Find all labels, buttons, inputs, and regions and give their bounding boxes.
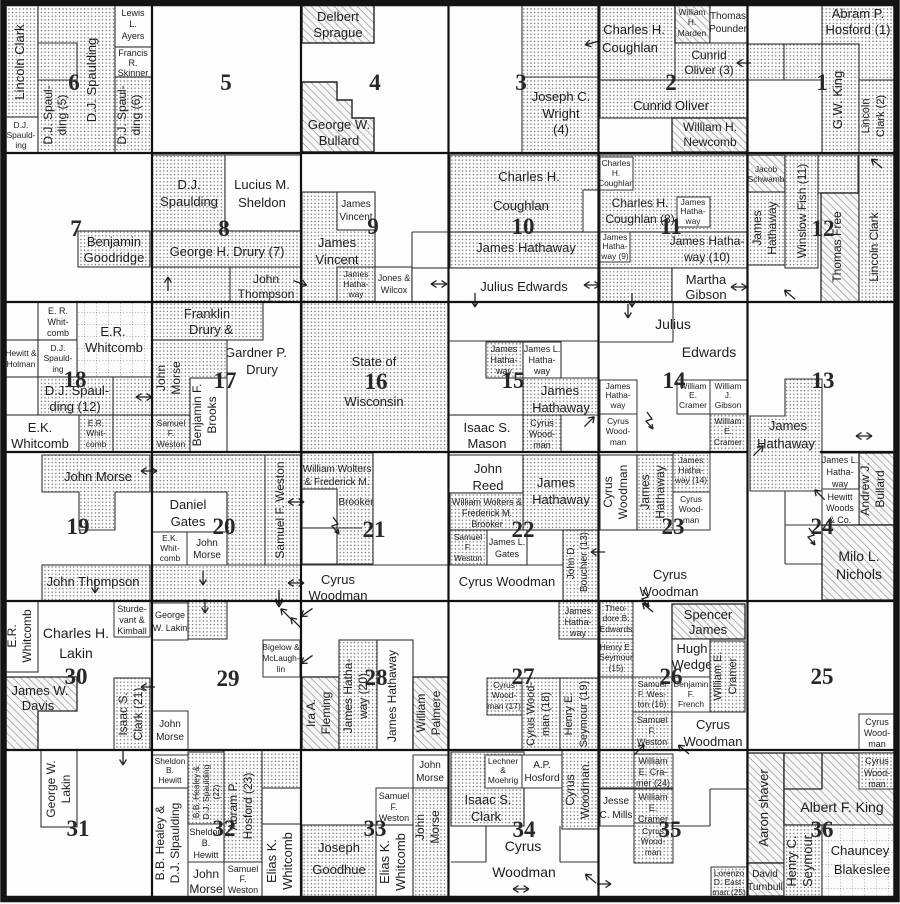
svg-text:John: John [253,272,279,286]
svg-text:Fleming: Fleming [319,692,333,735]
svg-text:Goodhue: Goodhue [312,862,366,877]
svg-text:Charles H.: Charles H. [43,625,109,641]
svg-text:F. Wes-: F. Wes- [638,689,666,699]
svg-text:Cyrus: Cyrus [563,774,577,805]
svg-text:Julius: Julius [655,316,691,332]
svg-text:ton (16): ton (16) [638,699,667,709]
svg-text:way: way [569,628,587,638]
svg-text:Lincoln Clark: Lincoln Clark [867,211,881,281]
svg-text:James: James [344,269,369,279]
svg-text:Hatha-: Hatha- [343,279,368,289]
svg-text:29: 29 [217,666,240,691]
svg-text:D. East-: D. East- [714,877,744,887]
svg-text:D.J.: D.J. [14,120,29,130]
svg-text:Gardner P.: Gardner P. [225,345,287,360]
svg-text:Hathaway: Hathaway [532,492,590,507]
svg-text:Gibson: Gibson [685,287,726,302]
svg-text:H.: H. [688,17,696,27]
svg-text:Hatha-: Hatha- [680,206,705,216]
svg-text:Gibson: Gibson [715,400,742,410]
svg-text:Samuel: Samuel [454,532,483,542]
svg-text:(22): (22) [211,784,221,799]
svg-text:J.: J. [725,390,732,400]
svg-text:14: 14 [663,368,687,393]
svg-text:D.J. Spaulding: D.J. Spaulding [84,38,99,123]
svg-text:William: William [639,792,668,802]
svg-text:Clark (2): Clark (2) [875,95,887,137]
svg-text:Cunrid Oliver: Cunrid Oliver [633,98,710,113]
svg-text:Newcomb: Newcomb [683,135,737,149]
svg-text:E. Cra-: E. Cra- [639,767,668,777]
svg-text:Whitcomb: Whitcomb [393,833,408,891]
svg-text:Isaac S.: Isaac S. [464,420,511,435]
svg-text:7: 7 [70,216,82,241]
svg-text:A.P.: A.P. [533,760,551,771]
svg-text:Davis: Davis [22,698,55,713]
svg-text:Jacob: Jacob [755,164,778,174]
svg-text:man: man [683,515,700,525]
svg-text:William: William [715,416,742,426]
svg-text:Cramer: Cramer [679,400,707,410]
svg-text:R.: R. [129,58,138,68]
svg-text:man: man [868,779,886,789]
svg-text:Drury &: Drury & [189,322,233,337]
svg-text:Coughlan: Coughlan [598,178,634,188]
svg-text:30: 30 [65,664,88,689]
svg-text:Hatha-: Hatha- [528,355,555,365]
svg-text:F.: F. [239,874,246,884]
svg-text:William E.: William E. [712,652,724,701]
svg-text:Whitcomb: Whitcomb [280,832,295,890]
svg-text:David: David [752,869,778,880]
svg-text:William: William [679,7,706,17]
svg-text:D.J. Slpaulding: D.J. Slpaulding [168,803,182,884]
svg-text:Thompson: Thompson [238,287,295,301]
svg-text:Seymour: Seymour [800,834,815,887]
svg-text:Hewitt: Hewitt [827,492,853,502]
svg-text:man (25): man (25) [712,887,746,897]
svg-text:Elias K.: Elias K. [264,839,279,883]
svg-text:E.K.: E.K. [28,420,53,435]
svg-text:2: 2 [665,70,677,95]
svg-text:Charles: Charles [602,158,631,168]
svg-text:Samuel F. Weston: Samuel F. Weston [273,461,287,558]
svg-text:Wood-: Wood- [679,504,704,514]
svg-text:Nichols: Nichols [836,566,882,582]
svg-text:Andrew J.: Andrew J. [858,462,872,515]
svg-text:State of: State of [352,354,397,369]
svg-text:11: 11 [660,214,682,239]
svg-text:Coughlan: Coughlan [602,40,658,55]
svg-text:Whitcomb: Whitcomb [85,340,143,355]
svg-text:Sheldon: Sheldon [238,195,286,210]
svg-text:Charles H.: Charles H. [612,196,669,210]
svg-text:Julius Edwards: Julius Edwards [480,279,568,294]
svg-text:way: way [685,216,702,226]
svg-text:James Hatha-: James Hatha- [341,659,355,734]
svg-text:dore B.: dore B. [602,613,629,623]
svg-text:W. Lakin: W. Lakin [153,623,188,633]
svg-text:E.R.: E.R. [100,324,125,339]
svg-text:Morse: Morse [193,550,221,561]
svg-text:Whit-: Whit- [86,428,106,438]
svg-text:Spaulding: Spaulding [160,194,218,209]
svg-text:man: man [610,437,627,447]
svg-text:G.W. King: G.W. King [830,71,845,130]
svg-text:9: 9 [367,214,379,239]
svg-text:man (18): man (18) [540,692,552,736]
svg-text:James: James [318,235,357,250]
svg-text:Brooker: Brooker [471,519,503,529]
svg-text:comb: comb [160,553,181,563]
svg-text:& Frederick M.: & Frederick M. [304,477,369,488]
svg-text:Pounder: Pounder [709,24,747,35]
svg-text:Edwards: Edwards [600,624,633,634]
svg-text:21: 21 [363,517,386,542]
svg-text:James: James [638,474,652,509]
svg-text:William: William [414,694,428,733]
svg-text:Whitcomb: Whitcomb [20,609,34,663]
svg-text:L.: L. [129,19,137,29]
svg-text:James: James [537,475,576,490]
svg-text:Hosford (23): Hosford (23) [241,773,255,840]
svg-text:Wisconsin: Wisconsin [344,394,403,409]
svg-text:Charles H.: Charles H. [603,22,664,37]
svg-text:19: 19 [67,514,90,539]
svg-text:way (14): way (14) [674,475,707,485]
svg-text:Wood-: Wood- [864,728,890,738]
svg-text:Cyrus: Cyrus [530,418,554,428]
svg-text:34: 34 [513,817,537,842]
svg-text:way (10): way (10) [683,250,730,264]
svg-text:John Thompson: John Thompson [47,574,140,589]
svg-text:Woodman.: Woodman. [578,761,592,819]
svg-text:Gates: Gates [171,514,206,529]
svg-text:Lewis: Lewis [121,8,145,18]
svg-text:Morse: Morse [156,732,184,743]
svg-text:John Morse: John Morse [64,469,132,484]
svg-text:Jesse: Jesse [603,796,630,807]
svg-text:Whit-: Whit- [48,317,69,327]
svg-text:William H.: William H. [683,120,737,134]
svg-text:5: 5 [220,70,232,95]
svg-text:Daniel: Daniel [170,497,207,512]
svg-text:Woodman: Woodman [683,734,742,749]
svg-text:Weston: Weston [454,553,483,563]
svg-text:Lincoln Clark: Lincoln Clark [12,24,27,100]
svg-text:Hatha-: Hatha- [826,467,853,477]
svg-text:John: John [193,867,219,881]
svg-text:way: way [610,400,627,410]
svg-text:D.J. Spaulding: D.J. Spaulding [201,764,211,819]
svg-text:27: 27 [512,664,535,689]
svg-text:ding (5): ding (5) [55,95,69,136]
svg-text:6: 6 [68,70,80,95]
svg-text:Wood-: Wood- [606,426,631,436]
svg-text:William: William [639,756,668,766]
svg-text:George: George [155,610,185,620]
svg-text:35: 35 [659,817,682,842]
svg-text:Whit-: Whit- [160,543,180,553]
svg-text:Samuel: Samuel [157,418,186,428]
svg-text:E.: E. [724,426,732,436]
svg-text:Weston: Weston [157,439,186,449]
svg-text:John: John [474,461,502,476]
svg-text:Cyrus: Cyrus [680,494,702,504]
svg-text:Hatha-: Hatha- [605,390,630,400]
svg-text:4: 4 [369,70,381,95]
svg-text:Hosford: Hosford [524,773,559,784]
svg-text:James L.: James L. [524,344,561,354]
svg-text:Milo L.: Milo L. [838,548,879,564]
svg-text:James: James [341,199,370,210]
svg-text:James L.: James L. [822,455,859,465]
svg-text:Spauld-: Spauld- [44,353,73,363]
svg-text:Hosford (1): Hosford (1) [825,22,890,37]
svg-text:Bullard: Bullard [873,470,887,507]
svg-text:Clark (21): Clark (21) [131,688,145,741]
svg-text:Woodman: Woodman [492,864,556,880]
svg-text:Hatha-: Hatha- [490,355,517,365]
svg-text:3: 3 [515,70,527,95]
svg-text:Winslow Fish (11): Winslow Fish (11) [795,164,809,258]
svg-text:James: James [541,383,580,398]
svg-text:Cyrus: Cyrus [607,416,629,426]
svg-text:F.: F. [688,689,695,699]
svg-text:Cyrus: Cyrus [321,572,355,587]
svg-text:Hathaway: Hathaway [765,201,779,254]
svg-text:Wilcox: Wilcox [381,285,408,295]
svg-text:Coughlan: Coughlan [493,198,549,213]
svg-text:Hewitt: Hewitt [158,775,182,785]
svg-text:George W.: George W. [44,760,58,817]
svg-text:Hatha-: Hatha- [678,465,703,475]
svg-text:Woods: Woods [826,503,854,513]
svg-text:Cyrus: Cyrus [653,567,687,582]
svg-text:Franklin: Franklin [184,306,230,321]
svg-text:George H. Drury (7): George H. Drury (7) [170,244,285,259]
svg-text:John: John [419,760,441,771]
svg-text:H.: H. [612,168,620,178]
svg-text:Jones &: Jones & [378,273,411,283]
svg-text:Brooks: Brooks [205,396,219,433]
svg-text:comb: comb [47,328,69,338]
svg-text:C. Mills: C. Mills [600,810,633,821]
svg-text:Hugh: Hugh [676,641,707,656]
svg-text:Drury: Drury [246,362,278,377]
svg-text:F.: F. [648,726,655,736]
svg-text:Samuel: Samuel [379,791,410,801]
svg-text:John: John [154,365,168,391]
svg-text:Bullard: Bullard [319,133,359,148]
svg-text:James: James [750,210,764,245]
svg-text:James Hathaway: James Hathaway [385,650,399,742]
svg-text:10: 10 [512,214,535,239]
svg-text:Hatha-: Hatha- [602,241,627,251]
svg-text:33: 33 [364,816,387,841]
svg-text:McLaugh-: McLaugh- [262,653,299,663]
svg-text:Brooker: Brooker [338,497,374,508]
svg-text:Henry C.: Henry C. [784,835,799,886]
svg-text:Cyrus Wood-: Cyrus Wood- [525,682,537,746]
svg-text:ing: ing [15,140,27,150]
svg-text:Elias K.: Elias K. [377,840,392,884]
svg-text:Oliver (3): Oliver (3) [684,63,733,77]
svg-text:man: man [868,739,886,749]
svg-text:D.J.: D.J. [51,343,66,353]
svg-text:Morse: Morse [169,361,183,395]
svg-text:Holman: Holman [7,359,36,369]
svg-text:Wright: Wright [542,106,580,121]
svg-text:Lakin: Lakin [59,645,92,661]
svg-text:Wood-: Wood- [529,429,555,439]
svg-text:Seymour: Seymour [599,652,633,662]
svg-text:25: 25 [811,664,834,689]
svg-text:way: way [831,479,849,489]
svg-text:Benjamin: Benjamin [87,234,141,249]
svg-text:James: James [679,455,704,465]
svg-text:28: 28 [365,665,388,690]
svg-text:Cunrid: Cunrid [691,48,726,62]
svg-text:Clark: Clark [471,809,502,824]
svg-text:E.: E. [649,803,658,813]
svg-text:B.: B. [166,765,174,775]
svg-text:Aaron shaver: Aaron shaver [756,769,771,847]
svg-text:James: James [491,344,518,354]
svg-text:Weston: Weston [228,885,258,895]
svg-text:Wood-: Wood- [492,690,517,700]
svg-text:Henry E.: Henry E. [600,642,633,652]
svg-text:8: 8 [218,216,230,241]
svg-text:Cyrus: Cyrus [865,717,889,727]
svg-text:B.B. Healey &: B.B. Healey & [153,806,167,881]
svg-text:Ira A.: Ira A. [304,699,318,727]
svg-text:Turnbull: Turnbull [747,882,783,893]
svg-text:Spencer: Spencer [684,607,733,622]
svg-text:ding (12): ding (12) [49,399,100,414]
svg-text:Gates: Gates [495,549,520,559]
svg-text:Cyrus: Cyrus [865,756,889,766]
svg-text:E.K.: E.K. [162,533,178,543]
svg-text:Albert F. King: Albert F. King [800,799,883,815]
svg-text:Bouchier (13): Bouchier (13) [579,532,590,592]
svg-text:Edwards: Edwards [682,344,736,360]
svg-text:Isaac S.: Isaac S. [116,692,130,735]
svg-text:Sturde-: Sturde- [117,604,147,614]
svg-text:James: James [769,418,808,433]
svg-text:D.J.: D.J. [177,177,200,192]
svg-text:16: 16 [365,369,388,394]
svg-text:Martha: Martha [686,272,727,287]
svg-text:22: 22 [512,517,535,542]
svg-text:Thomas: Thomas [710,11,746,22]
svg-text:18: 18 [64,367,87,392]
svg-text:Hatha-: Hatha- [564,617,591,627]
svg-text:Benjamin F.: Benjamin F. [190,384,204,447]
svg-text:George W.: George W. [308,117,370,132]
svg-text:Samuel: Samuel [637,715,668,725]
svg-text:way: way [348,289,365,299]
svg-text:13: 13 [812,368,835,393]
svg-text:Blakeslee: Blakeslee [834,862,890,877]
svg-text:Chauncey: Chauncey [831,843,890,858]
svg-text:French: French [678,699,704,709]
svg-text:26: 26 [660,664,683,689]
svg-text:Moehrig: Moehrig [488,775,519,785]
svg-text:Schwamb: Schwamb [748,174,785,184]
svg-text:James: James [689,622,728,637]
svg-text:D.J. Spaul-: D.J. Spaul- [115,85,129,144]
svg-text:James W.: James W. [11,683,68,698]
svg-text:Isaac S.: Isaac S. [465,792,512,807]
svg-text:Henry E.: Henry E. [563,693,575,736]
svg-text:Hathaway: Hathaway [653,465,667,518]
svg-text:mer (24): mer (24) [636,778,670,788]
svg-text:Marden: Marden [678,28,707,38]
svg-text:Charles H.: Charles H. [498,169,559,184]
svg-text:Cramer: Cramer [714,437,742,447]
svg-text:Goodridge: Goodridge [84,250,145,265]
svg-text:Theo-: Theo- [605,603,627,613]
svg-text:Joseph C.: Joseph C. [532,89,591,104]
svg-text:Lakin: Lakin [59,775,73,804]
svg-text:John: John [159,719,181,730]
svg-text:Cramer: Cramer [727,657,739,694]
svg-text:Morse: Morse [416,773,444,784]
svg-text:Wood-: Wood- [864,768,890,778]
svg-text:Palmere: Palmere [429,690,443,735]
svg-text:vant &: vant & [119,615,145,625]
svg-text:Kimball: Kimball [117,626,147,636]
svg-text:way (9): way (9) [600,251,629,261]
svg-text:Samuel: Samuel [228,864,259,874]
svg-text:man (17): man (17) [487,701,521,711]
svg-text:ing: ing [52,364,64,374]
svg-text:Bigelow &: Bigelow & [262,642,300,652]
svg-text:Hathaway: Hathaway [757,436,815,451]
svg-text:Seymour (19): Seymour (19) [578,681,590,748]
svg-text:comb: comb [86,439,107,449]
svg-text:way: way [533,366,551,376]
svg-text:F.: F. [168,428,175,438]
svg-text:lin: lin [277,664,286,674]
svg-text:Delbert: Delbert [317,9,359,24]
svg-text:Spauld-: Spauld- [7,130,36,140]
svg-text:ding (6): ding (6) [129,95,143,136]
svg-text:Abram P.: Abram P. [832,6,885,21]
svg-text:man: man [645,847,662,857]
svg-text:Hathaway: Hathaway [532,400,590,415]
svg-text:E. R.: E. R. [48,306,68,316]
svg-text:Cyrus: Cyrus [696,717,730,732]
svg-text:Joseph: Joseph [318,840,360,855]
svg-text:Morse: Morse [189,882,223,896]
svg-text:Hewitt &: Hewitt & [5,348,37,358]
svg-text:32: 32 [213,816,236,841]
svg-text:Hewitt: Hewitt [193,850,219,860]
svg-text:B.: B. [202,838,211,848]
svg-text:F.: F. [465,542,472,552]
svg-text:&: & [500,765,506,775]
svg-text:man: man [533,440,551,450]
svg-text:36: 36 [811,817,834,842]
svg-text:Cyrus: Cyrus [601,476,615,507]
svg-text:(4): (4) [553,122,569,137]
svg-text:Reed: Reed [472,478,503,493]
svg-text:Lincoln: Lincoln [860,99,872,134]
svg-text:20: 20 [213,514,236,539]
svg-text:E.R.: E.R. [5,624,19,647]
